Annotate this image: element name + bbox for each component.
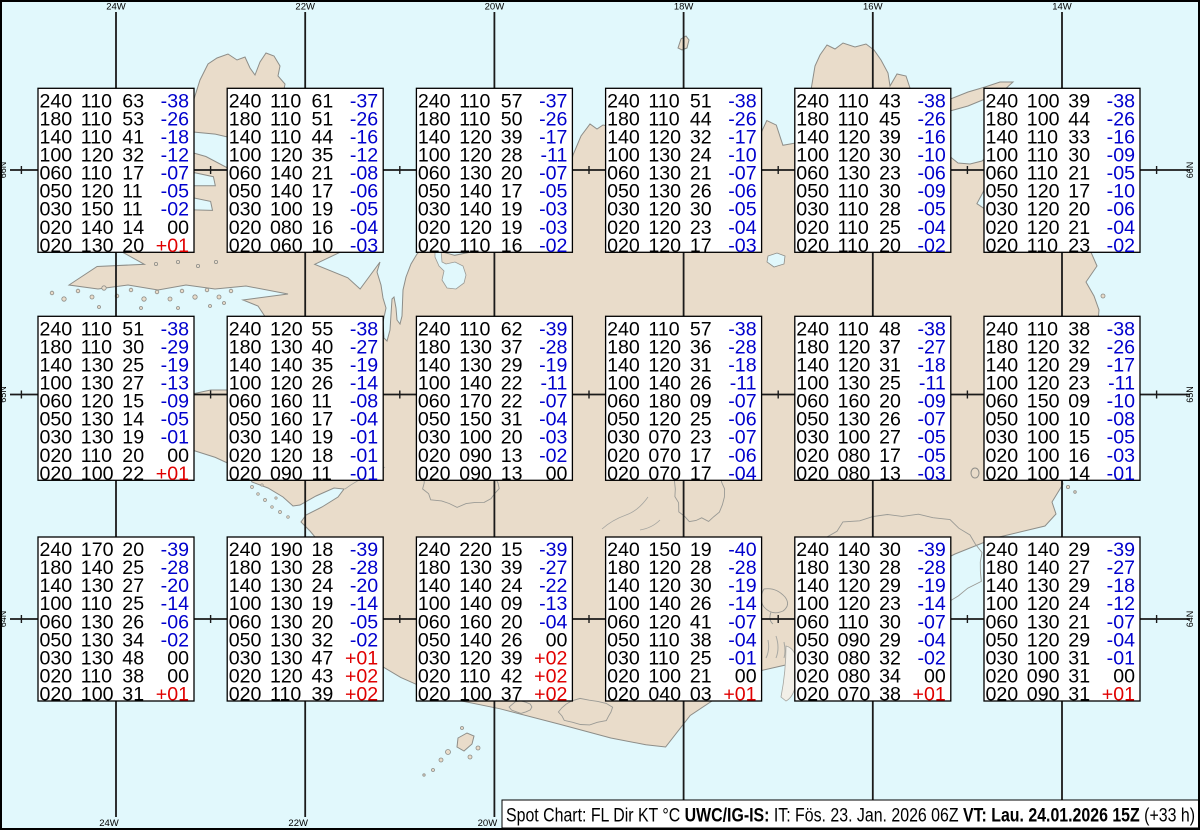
svg-text:+01: +01: [156, 235, 189, 257]
svg-text:-03: -03: [917, 463, 945, 485]
svg-text:100: 100: [81, 684, 114, 706]
svg-text:38: 38: [879, 684, 901, 706]
svg-text:20W: 20W: [485, 2, 505, 13]
svg-text:24W: 24W: [106, 2, 126, 13]
svg-text:100: 100: [459, 684, 492, 706]
svg-text:10: 10: [312, 235, 334, 257]
svg-text:040: 040: [648, 684, 681, 706]
svg-text:020: 020: [796, 235, 829, 257]
svg-text:16: 16: [501, 235, 523, 257]
svg-text:-02: -02: [1107, 235, 1135, 257]
svg-text:Spot Chart: FL Dir KT °C UWC/I: Spot Chart: FL Dir KT °C UWC/IG-IS: IT: …: [506, 806, 1195, 827]
svg-text:-04: -04: [728, 463, 756, 485]
svg-text:+02: +02: [345, 684, 378, 706]
svg-text:110: 110: [459, 235, 490, 257]
svg-text:080: 080: [838, 463, 871, 485]
svg-text:020: 020: [229, 684, 262, 706]
svg-text:100: 100: [1027, 463, 1060, 485]
svg-text:17: 17: [690, 463, 712, 485]
svg-text:-03: -03: [350, 235, 378, 257]
svg-text:-01: -01: [1107, 463, 1135, 485]
svg-text:16W: 16W: [863, 2, 883, 13]
svg-text:00: 00: [546, 463, 568, 485]
svg-text:020: 020: [986, 684, 1019, 706]
svg-text:020: 020: [796, 463, 829, 485]
svg-text:020: 020: [607, 235, 640, 257]
svg-text:39: 39: [312, 684, 334, 706]
svg-text:110: 110: [838, 235, 869, 257]
svg-text:020: 020: [607, 463, 640, 485]
svg-text:-02: -02: [917, 235, 945, 257]
svg-text:31: 31: [1068, 684, 1090, 706]
svg-text:14: 14: [1068, 463, 1090, 485]
svg-text:20: 20: [879, 235, 901, 257]
svg-text:13: 13: [501, 463, 523, 485]
svg-text:64N: 64N: [1185, 611, 1195, 628]
svg-text:37: 37: [501, 684, 523, 706]
svg-text:020: 020: [418, 463, 451, 485]
svg-text:020: 020: [986, 235, 1019, 257]
svg-text:020: 020: [229, 463, 262, 485]
svg-text:020: 020: [607, 684, 640, 706]
svg-text:14W: 14W: [1052, 2, 1072, 13]
svg-text:110: 110: [270, 684, 301, 706]
svg-text:+02: +02: [534, 684, 567, 706]
svg-text:66N: 66N: [1185, 162, 1195, 179]
svg-text:020: 020: [418, 235, 451, 257]
svg-text:11: 11: [312, 463, 332, 485]
svg-text:20W: 20W: [478, 818, 498, 829]
svg-text:22W: 22W: [295, 2, 315, 13]
svg-text:22W: 22W: [288, 818, 308, 829]
svg-text:24W: 24W: [99, 818, 119, 829]
svg-text:090: 090: [1027, 684, 1060, 706]
svg-text:120: 120: [648, 235, 681, 257]
svg-text:100: 100: [81, 463, 114, 485]
svg-text:020: 020: [986, 463, 1019, 485]
svg-text:23: 23: [1068, 235, 1090, 257]
svg-text:-01: -01: [350, 463, 378, 485]
svg-text:090: 090: [459, 463, 492, 485]
svg-text:+01: +01: [156, 684, 189, 706]
svg-text:18W: 18W: [674, 2, 694, 13]
svg-text:130: 130: [81, 235, 114, 257]
svg-text:22: 22: [122, 463, 144, 485]
svg-text:110: 110: [1027, 235, 1058, 257]
svg-text:020: 020: [796, 684, 829, 706]
svg-text:070: 070: [648, 463, 681, 485]
svg-text:020: 020: [40, 463, 73, 485]
svg-text:+01: +01: [156, 463, 189, 485]
svg-text:+01: +01: [1102, 684, 1135, 706]
svg-text:060: 060: [270, 235, 303, 257]
svg-text:17: 17: [690, 235, 712, 257]
svg-text:03: 03: [690, 684, 712, 706]
svg-text:020: 020: [40, 235, 73, 257]
svg-text:31: 31: [122, 684, 144, 706]
svg-text:090: 090: [270, 463, 303, 485]
svg-text:-03: -03: [728, 235, 756, 257]
svg-text:+01: +01: [913, 684, 946, 706]
svg-text:020: 020: [229, 235, 262, 257]
svg-text:020: 020: [418, 684, 451, 706]
svg-text:65N: 65N: [1185, 386, 1195, 403]
svg-text:20: 20: [122, 235, 144, 257]
svg-text:020: 020: [40, 684, 73, 706]
svg-text:-02: -02: [539, 235, 567, 257]
svg-text:070: 070: [838, 684, 871, 706]
svg-text:13: 13: [879, 463, 901, 485]
svg-text:+01: +01: [723, 684, 756, 706]
